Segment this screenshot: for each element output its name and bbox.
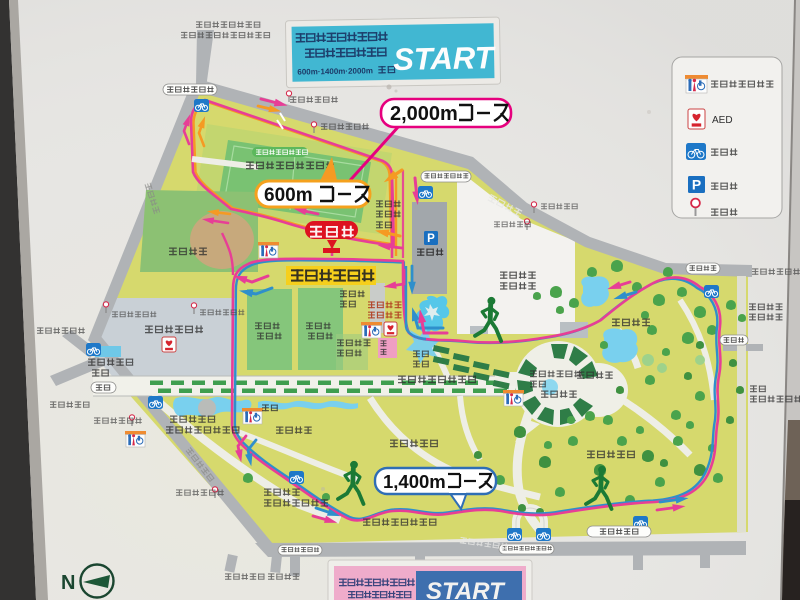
svg-text:START: START (393, 40, 497, 77)
svg-text:2,000m: 2,000m (390, 103, 458, 125)
svg-text:600m: 600m (264, 185, 313, 206)
svg-text:600m·1400m·2000m: 600m·1400m·2000m (297, 66, 373, 76)
svg-text:N: N (61, 572, 75, 594)
svg-text:AED: AED (712, 115, 733, 126)
svg-text:P: P (427, 233, 435, 245)
svg-text:START: START (426, 578, 506, 600)
svg-text:P: P (692, 176, 701, 192)
svg-text:1,400m: 1,400m (383, 471, 446, 492)
